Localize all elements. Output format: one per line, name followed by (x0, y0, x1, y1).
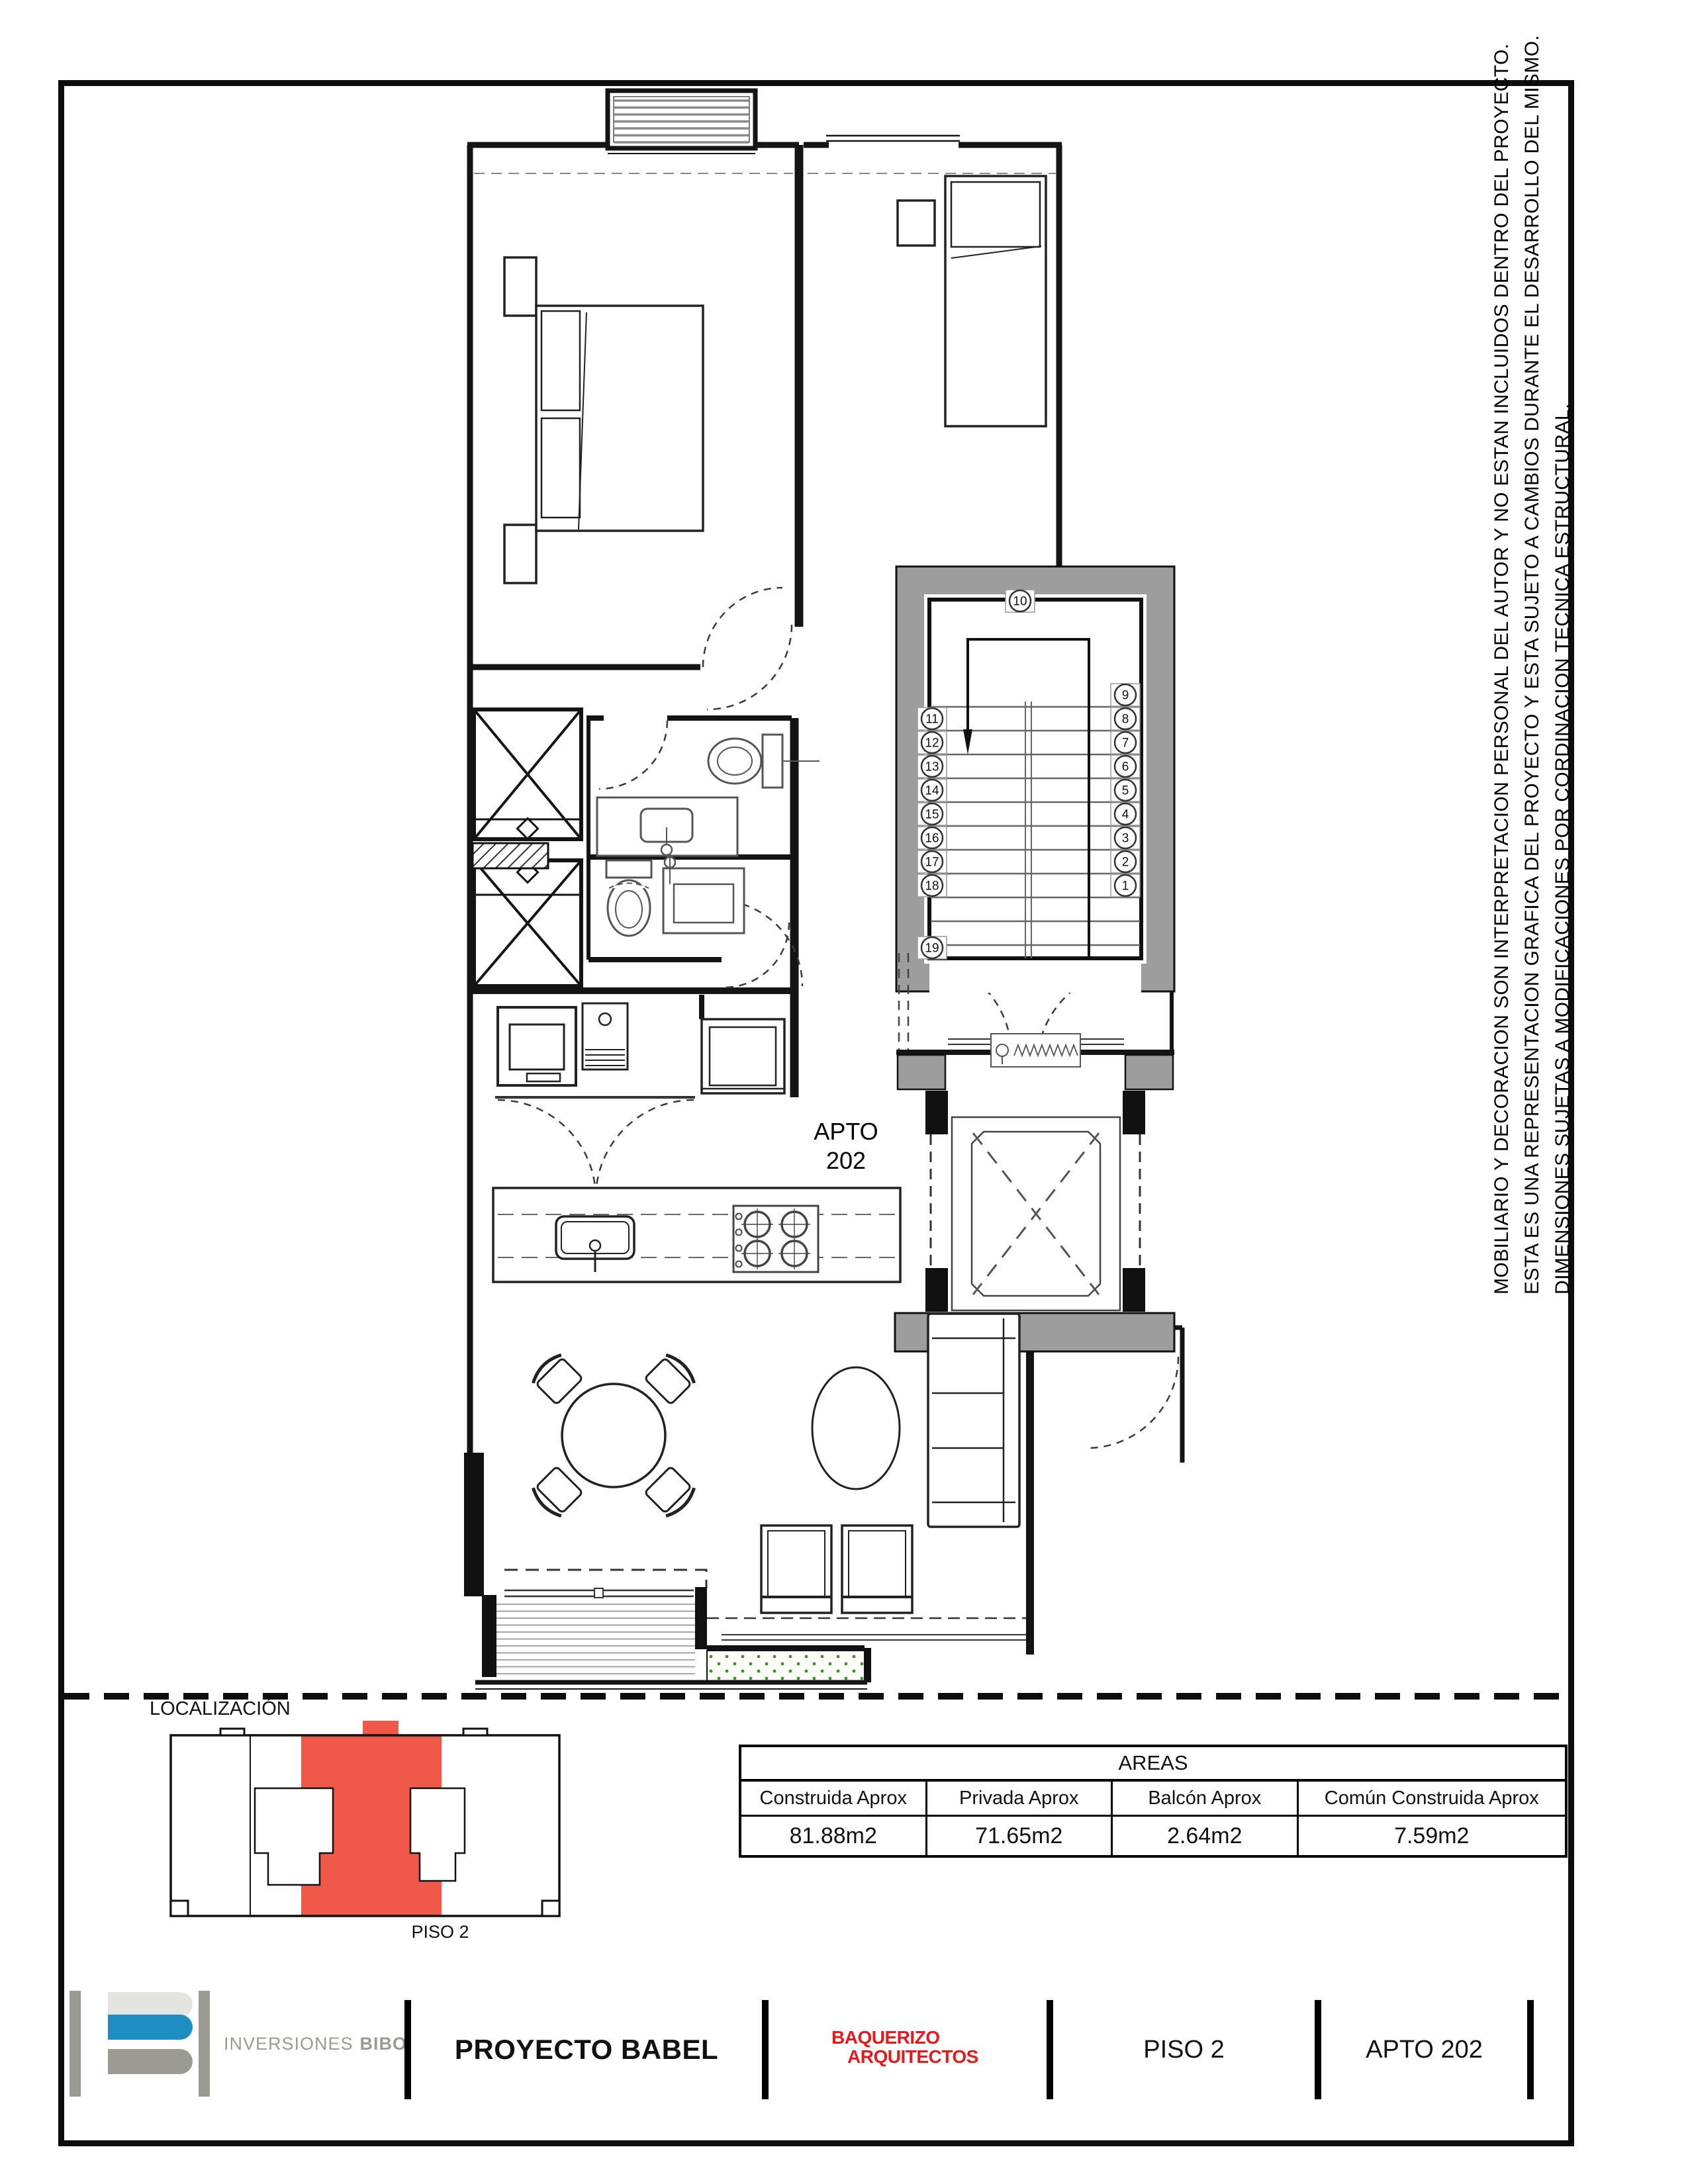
planter (707, 1651, 865, 1682)
duct-hatch (473, 843, 548, 868)
logo-segment-blue (108, 2015, 193, 2040)
unit-label: APTO 202 (814, 1118, 878, 1174)
logo-left-bar (70, 1991, 81, 2097)
stair-step-number: 9 (1122, 689, 1129, 703)
stair-step-number: 12 (925, 737, 939, 751)
stair-step-number: 2 (1122, 856, 1129, 870)
stair-step-number: 11 (925, 713, 939, 727)
stair-step-number: 18 (925, 880, 939, 893)
titleblock-divider (1047, 2000, 1053, 2099)
stair-step-number: 8 (1122, 713, 1129, 727)
localization-diagram (171, 1721, 559, 1916)
localization-title: LOCALIZACIÓN (150, 1698, 291, 1720)
dining-chair (530, 1465, 584, 1520)
column-header: Privada Aprox (927, 1782, 1111, 1817)
column-value: 2.64m2 (1113, 1817, 1297, 1855)
logo-right-bar (199, 1991, 210, 2097)
unit-number-label: APTO 202 (1321, 2000, 1527, 2099)
nightstand (504, 257, 536, 316)
titleblock-divider (404, 2000, 411, 2099)
company-name-regular: INVERSIONES (224, 2034, 353, 2054)
column-value: 7.59m2 (1299, 1817, 1565, 1855)
stair-step-number: 7 (1122, 737, 1129, 751)
armchair (761, 1525, 831, 1613)
areas-column-privada: Privada Aprox 71.65m2 (927, 1782, 1113, 1855)
areas-column-comun: Común Construida Aprox 7.59m2 (1299, 1782, 1565, 1855)
window-louvers (614, 101, 749, 142)
column-header: Balcón Aprox (1113, 1782, 1297, 1817)
titleblock-divider (762, 2000, 769, 2099)
stair-step-number: 17 (925, 856, 939, 870)
company-name: INVERSIONES BIBO (224, 1991, 407, 2097)
titleblock-divider (1527, 2000, 1534, 2099)
architect-line1: BAQUERIZO (831, 2028, 978, 2047)
stair-step-number: 10 (1013, 595, 1027, 609)
stair-step-number: 19 (925, 942, 939, 956)
column-header: Común Construida Aprox (1299, 1782, 1565, 1817)
dining-table (562, 1384, 665, 1487)
stairwell: 11121314151617189876543211019 (896, 567, 1174, 1051)
stair-step-number: 13 (925, 760, 939, 774)
cooktop (733, 1206, 818, 1272)
unit-label-line1: APTO (814, 1118, 878, 1145)
localization-caption: PISO 2 (384, 1922, 496, 1942)
stair-step-number: 3 (1122, 832, 1129, 846)
titleblock-divider (1315, 2000, 1321, 2099)
disclaimer-line-2: ESTA ES UNA REPRESENTACION GRAFICA DEL P… (1521, 35, 1544, 1295)
unit-label-line2: 202 (826, 1147, 866, 1174)
areas-column-balcon: Balcón Aprox 2.64m2 (1113, 1782, 1299, 1855)
sofa (928, 1314, 1019, 1527)
living-dining-furniture (530, 1314, 1019, 1613)
kitchen-island (493, 1188, 900, 1282)
desk (898, 201, 935, 246)
logo-segment-gray (108, 2049, 193, 2074)
architect-name: BAQUERIZO ARQUITECTOS (831, 2028, 978, 2066)
stair-step-number: 16 (925, 832, 939, 846)
column-value: 71.65m2 (927, 1817, 1111, 1855)
stair-step-number: 5 (1122, 784, 1129, 798)
areas-table: AREAS Construida Aprox 81.88m2 Privada A… (739, 1745, 1568, 1858)
sink (674, 884, 733, 923)
nightstand (504, 525, 536, 583)
elevator (895, 1034, 1174, 1351)
logo-segment-light (108, 1992, 193, 2017)
areas-column-construida: Construida Aprox 81.88m2 (741, 1782, 927, 1855)
coffee-table (812, 1367, 900, 1489)
floor-label: PISO 2 (1053, 2000, 1315, 2099)
areas-table-title: AREAS (741, 1747, 1565, 1782)
column-value: 81.88m2 (741, 1817, 925, 1855)
closets (473, 709, 581, 986)
toilet-tank (763, 735, 782, 788)
stair-step-number: 14 (925, 784, 939, 798)
architect-line2: ARQUITECTOS (847, 2047, 978, 2066)
disclaimer-line-3: DIMENSIONES SUJETAS A MODIFICACIONES POR… (1552, 403, 1574, 1295)
stair-step-number: 4 (1122, 808, 1129, 822)
stair-step-number: 1 (1122, 880, 1129, 893)
project-title: PROYECTO BABEL (411, 2000, 762, 2099)
company-name-bold: BIBO (360, 2034, 408, 2054)
bedroom-furniture (504, 176, 1046, 583)
stair-step-number: 15 (925, 808, 939, 822)
stair-step-number: 6 (1122, 760, 1129, 774)
dining-chair (643, 1465, 698, 1520)
dining-chair (643, 1351, 698, 1406)
balcony (475, 1570, 1026, 1689)
balcony-decking (496, 1604, 695, 1674)
planter-edge (707, 1645, 865, 1651)
column-header: Construida Aprox (741, 1782, 925, 1817)
disclaimer-line-1: MOBILIARIO Y DECORACION SON INTERPRETACI… (1491, 44, 1513, 1295)
toilet-tank (606, 860, 651, 878)
drawing-sheet: 11121314151617189876543211019 (0, 0, 1688, 2184)
dining-chair (530, 1351, 584, 1406)
bathroom-fixtures (597, 735, 820, 936)
armchair (842, 1525, 912, 1613)
